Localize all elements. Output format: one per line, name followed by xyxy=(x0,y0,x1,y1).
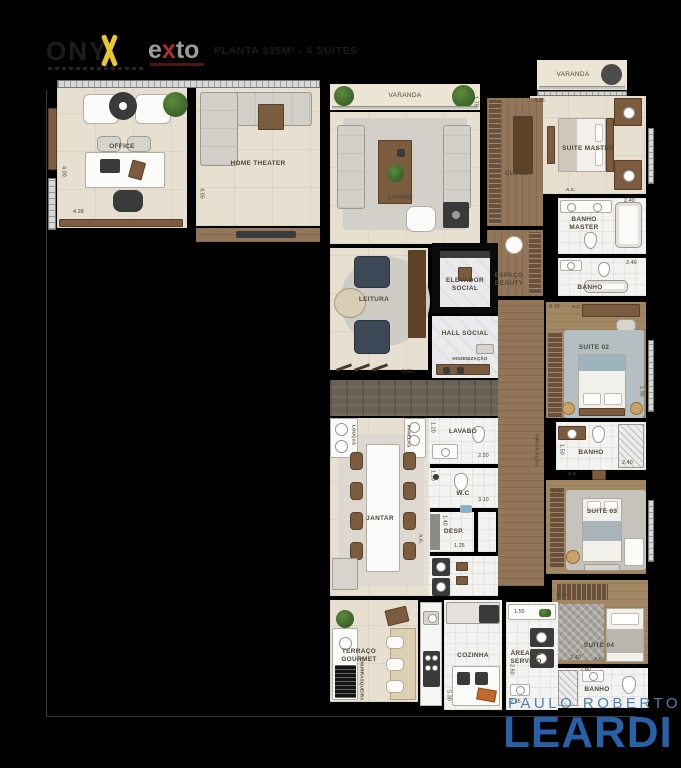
jantar-bench xyxy=(332,558,358,590)
s04-rug xyxy=(556,604,604,660)
sm-pillow-1 xyxy=(595,124,603,142)
loucas-plates-2 xyxy=(335,440,348,453)
servico-dim-height: 2.60 xyxy=(508,664,514,675)
window-suite02-right xyxy=(648,340,654,412)
room-office-label: OFFICE xyxy=(57,143,187,151)
room-suite-master: SUITE MASTER xyxy=(530,96,646,194)
room-living: LIVING xyxy=(330,112,480,244)
island-sink xyxy=(428,614,437,623)
exto-logo: exto xyxy=(148,36,199,65)
s02-dim-width: 3.10 xyxy=(549,305,560,311)
island-cooktop xyxy=(423,651,440,687)
exto-letter-e: e xyxy=(148,36,162,64)
cozinha-island xyxy=(452,666,500,706)
b04-dim-width: 2.80 xyxy=(580,668,591,674)
s03-dim-width: 3.10 xyxy=(551,491,562,497)
room-banho-master: BANHO MASTER 2.40 xyxy=(558,198,646,254)
room-home-theater-label: HOME THEATER xyxy=(196,160,320,168)
jantar-ac-label: A.C. xyxy=(418,534,423,544)
onyx-x-icon xyxy=(96,33,124,69)
s02-bed-blanket xyxy=(579,355,625,371)
room-terraco-gourmet-label: TERRAÇO GOURMET xyxy=(334,648,384,665)
lavabo-dim-width: 2.20 xyxy=(478,454,489,460)
varanda-suite-railing xyxy=(539,86,625,89)
room-elevador-social-label: ELEVADOR SOCIAL xyxy=(440,277,490,294)
room-suite-02-label: SUITE 02 xyxy=(564,344,624,352)
s03-dresser xyxy=(624,538,644,566)
room-varanda-label: VARANDA xyxy=(330,92,480,100)
room-cozinha-label: COZINHA xyxy=(444,652,502,660)
living-table-plant xyxy=(387,165,404,182)
bm-double-counter xyxy=(560,200,612,213)
desp-dim-height: 1.40 xyxy=(441,515,447,526)
office-desk-monitor xyxy=(100,159,120,173)
lavabo-dim-height: 1.20 xyxy=(429,422,435,433)
burner-1 xyxy=(425,655,431,661)
terraco-stool-2 xyxy=(386,658,404,671)
s04-pillow xyxy=(611,613,639,625)
b2-basin xyxy=(567,262,575,270)
wc-dim-width: 3.10 xyxy=(478,498,489,504)
circulacao-label: CIRCULAÇÃO xyxy=(534,434,539,466)
living-side-table-decor xyxy=(452,211,460,219)
laundry-stool-1 xyxy=(456,562,468,571)
floorplan-canvas: ONY exto PLANTA 335M² - 4 SUÍTES OFFICE … xyxy=(0,0,681,768)
office-desk xyxy=(85,152,165,188)
room-suite-master-label: SUITE MASTER xyxy=(530,145,646,153)
elevador-door-band xyxy=(440,251,490,258)
office-exec-chair xyxy=(113,190,143,212)
cozinha-appliance-1 xyxy=(457,672,470,685)
elevador-cab: ELEVADOR SOCIAL xyxy=(440,251,490,307)
suite-master-ac-label: A.C. xyxy=(566,188,576,193)
s03-bench xyxy=(584,564,620,571)
washer-door xyxy=(436,562,446,572)
desp-dim-width: 1.25 xyxy=(454,544,465,550)
dryer-machine xyxy=(432,578,450,596)
exto-tagline-bar xyxy=(150,63,204,66)
s04-dim-width: 2.40 xyxy=(570,656,581,662)
hall-dispenser-2 xyxy=(457,367,464,374)
room-suite-04-label: SUITE 04 xyxy=(564,642,634,650)
beauty-chair xyxy=(505,236,523,254)
cozinha-appliance-2 xyxy=(475,672,488,685)
room-hall-social: HALL SOCIAL HIGIENIZAÇÃO xyxy=(432,316,498,378)
banho2-dim: 2.40 xyxy=(626,261,637,267)
room-closet-label: CLOSET xyxy=(495,170,543,178)
jantar-chair-r2 xyxy=(403,482,416,500)
bm-basin-2 xyxy=(593,203,602,212)
burner-2 xyxy=(432,655,438,661)
leitura-armchair-1 xyxy=(354,256,390,288)
servico-sink-basin xyxy=(516,686,525,695)
gallery-corridor xyxy=(330,380,498,416)
office-wall-shelf xyxy=(48,108,57,170)
s03-wardrobe xyxy=(550,488,564,568)
hall-dim-width: 3.00 xyxy=(402,370,413,376)
corridor-storage-box xyxy=(592,470,606,480)
cozinha-dim-height: 5.30 xyxy=(445,690,451,701)
terraco-grill xyxy=(335,665,356,698)
loucas-label: LOUÇAS xyxy=(351,425,356,445)
ht-dim-height: 4.05 xyxy=(198,188,204,199)
hall-side-bench xyxy=(476,344,494,354)
bm-toilet xyxy=(584,232,597,249)
servico-herbs xyxy=(539,609,551,617)
s02-wardrobe xyxy=(548,332,562,418)
office-table-decor xyxy=(119,102,127,110)
room-suite-03: SUITE 03 3.10 xyxy=(546,480,646,574)
exto-letters-to: to xyxy=(176,36,200,64)
s02-pouf-2 xyxy=(630,402,643,415)
terraco-stool-1 xyxy=(386,636,404,649)
cozinha-cutting-board xyxy=(476,687,497,702)
leitura-console xyxy=(408,250,426,338)
living-armchair xyxy=(406,206,436,232)
room-leitura-label: LEITURA xyxy=(344,296,404,304)
jantar-chair-r1 xyxy=(403,452,416,470)
room-terraco-gourmet: CHURRASQUEIRA TERRAÇO GOURMET xyxy=(330,600,418,702)
room-hall-social-label: HALL SOCIAL xyxy=(432,330,498,338)
room-varanda: VARANDA xyxy=(330,84,480,110)
circulation-corridor: CIRCULAÇÃO xyxy=(498,300,544,586)
b04-toilet xyxy=(622,676,636,694)
washer-machine xyxy=(432,558,450,576)
bm-bathtub xyxy=(615,202,642,248)
jantar-chair-l2 xyxy=(350,482,363,500)
laundry-nook xyxy=(428,556,498,596)
room-banho-master-2-label: BANHO xyxy=(560,284,620,292)
terraco-plant xyxy=(336,610,354,628)
room-leitura: LEITURA xyxy=(330,248,428,370)
room-wc: W.C 1.10 3.10 xyxy=(428,468,498,508)
varanda-dim-height: 1.75 xyxy=(472,96,478,107)
window-suite03-right xyxy=(648,500,654,562)
terraco-stool-3 xyxy=(386,680,404,693)
s04-ac-label: A.C. xyxy=(594,657,604,662)
sm-nightstand-2 xyxy=(614,160,642,190)
room-despensa-label: DESP. xyxy=(436,528,472,536)
s02-dim-height: 1.90 xyxy=(638,386,644,397)
s02-ac-label: A.C. xyxy=(572,305,582,310)
room-banho-suite-04-label: BANHO xyxy=(572,686,622,694)
dryer-door xyxy=(436,582,446,592)
room-espaco-beauty-label: ESPAÇO BEAUTY xyxy=(487,272,531,289)
b02-dim-height: 1.50 xyxy=(558,444,564,455)
sm-lamp-1 xyxy=(623,107,635,119)
b2-toilet xyxy=(598,262,610,277)
s02-headboard xyxy=(579,408,625,416)
room-suite-02: SUITE 02 A.C. 3.10 1.90 xyxy=(546,302,646,418)
island-sink-counter xyxy=(423,611,439,625)
closet-dim-width: 4.85 xyxy=(534,99,545,105)
terraco-board xyxy=(384,606,409,627)
kitchen-island-column xyxy=(420,602,442,706)
room-closet: CLOSET xyxy=(487,98,543,226)
b02-toilet xyxy=(592,426,605,443)
loucas-plates-1 xyxy=(335,423,348,436)
cozinha-top-counter xyxy=(446,602,500,624)
room-suite-04: SUITE 04 4.30 A.C. 2.40 xyxy=(552,580,648,664)
varanda-glass-railing xyxy=(332,106,478,109)
b02-dim-width: 2.40 xyxy=(622,461,633,467)
office-desk-tray xyxy=(128,159,146,180)
room-elevador-social: ELEVADOR SOCIAL xyxy=(432,243,498,313)
sm-lamp-2 xyxy=(623,170,635,182)
living-side-table xyxy=(443,202,469,228)
ht-sofa-chaise xyxy=(200,92,238,166)
window-suite-master-right xyxy=(648,128,654,184)
hall-higienizacao-label: HIGIENIZAÇÃO xyxy=(442,357,498,362)
ht-tray-table xyxy=(258,104,284,130)
ht-deck-strip xyxy=(196,228,320,242)
hall-dispenser-1 xyxy=(443,367,450,374)
room-lavabo-label: LAVABO xyxy=(438,428,488,436)
servico-dim-top: 1.55 xyxy=(514,610,525,616)
room-jantar: LOUÇAS PANELAS JANTAR A.C. xyxy=(330,418,430,596)
window-top-office xyxy=(57,80,320,88)
service-passage xyxy=(478,512,496,552)
panelas-label: PANELAS xyxy=(406,425,411,448)
brand-leardi-text: LEARDI xyxy=(503,708,673,758)
cozinha-fridge xyxy=(479,605,499,623)
jantar-table xyxy=(366,444,400,572)
room-living-label: LIVING xyxy=(350,194,450,202)
s02-ac-label-2: A.C. xyxy=(568,472,578,477)
onyx-tagline-bar xyxy=(48,67,144,70)
room-jantar-label: JANTAR xyxy=(350,515,410,523)
room-despensa: DESP. 1.40 1.25 xyxy=(428,512,474,552)
s02-pillow-2 xyxy=(604,393,622,405)
room-cozinha: COZINHA xyxy=(444,600,502,710)
s04-dim-top: 4.30 xyxy=(556,594,567,600)
s02-bed xyxy=(578,354,626,416)
lavabo-counter xyxy=(432,444,458,459)
b02-counter xyxy=(558,426,586,440)
s03-pouf xyxy=(566,550,580,564)
room-varanda-suite-label: VARANDA xyxy=(537,71,609,79)
lavabo-basin xyxy=(441,448,450,457)
despensa-window-item xyxy=(460,505,472,513)
jantar-chair-r4 xyxy=(403,542,416,560)
closet-wardrobe-left xyxy=(489,100,501,224)
s02-pillow-1 xyxy=(583,393,601,405)
s04-bed xyxy=(606,608,644,662)
sm-nightstand-1 xyxy=(614,98,642,126)
room-office: OFFICE 4.00 4.28 xyxy=(57,88,187,228)
laundry-stool-2 xyxy=(456,576,468,585)
plan-subtitle: PLANTA 335M² - 4 SUÍTES xyxy=(214,45,358,57)
b2-counter xyxy=(560,260,582,271)
s02-desk xyxy=(582,304,640,317)
office-round-table xyxy=(109,92,137,120)
office-plant xyxy=(163,92,188,117)
burner-4 xyxy=(432,665,438,671)
room-banho-suite-02: BANHO 1.50 2.40 xyxy=(556,422,646,470)
ht-deck-console xyxy=(236,231,296,238)
burner-3 xyxy=(425,665,431,671)
s03-bed-blanket xyxy=(583,521,621,541)
room-banho-suite-02-label: BANHO xyxy=(566,449,616,457)
wc-toilet xyxy=(454,473,468,491)
office-dim-height: 4.00 xyxy=(60,166,66,177)
room-banho-master-label: BANHO MASTER xyxy=(564,216,604,233)
office-sideboard xyxy=(59,219,183,227)
exto-letter-x: x xyxy=(162,36,176,64)
room-area-servico: 1.55 ÁREA DE SERVIÇO 2.60 2.45 xyxy=(506,602,558,710)
room-varanda-suite: VARANDA xyxy=(537,60,627,90)
left-dimension-line xyxy=(46,90,47,716)
bm-basin-1 xyxy=(567,203,576,212)
b02-basin xyxy=(567,429,577,439)
window-office-left xyxy=(48,178,56,230)
banho-master-dim: 2.40 xyxy=(624,199,635,205)
s02-pouf-1 xyxy=(562,402,575,415)
room-home-theater: HOME THEATER 4.05 xyxy=(196,88,320,226)
living-table-decor xyxy=(397,149,405,157)
jantar-chair-l1 xyxy=(350,452,363,470)
leitura-armchair-2 xyxy=(354,320,390,354)
room-banho-master-2: BANHO 2.40 xyxy=(558,258,646,296)
office-dim-width: 4.28 xyxy=(73,210,84,216)
wc-dim-height: 1.10 xyxy=(429,470,435,481)
servico-washer-door xyxy=(536,632,547,643)
room-suite-03-label: SUITE 03 xyxy=(572,508,632,516)
room-lavabo: LAVABO 1.20 2.20 xyxy=(428,418,498,464)
servico-washer xyxy=(530,628,554,647)
hall-bench xyxy=(436,364,490,375)
